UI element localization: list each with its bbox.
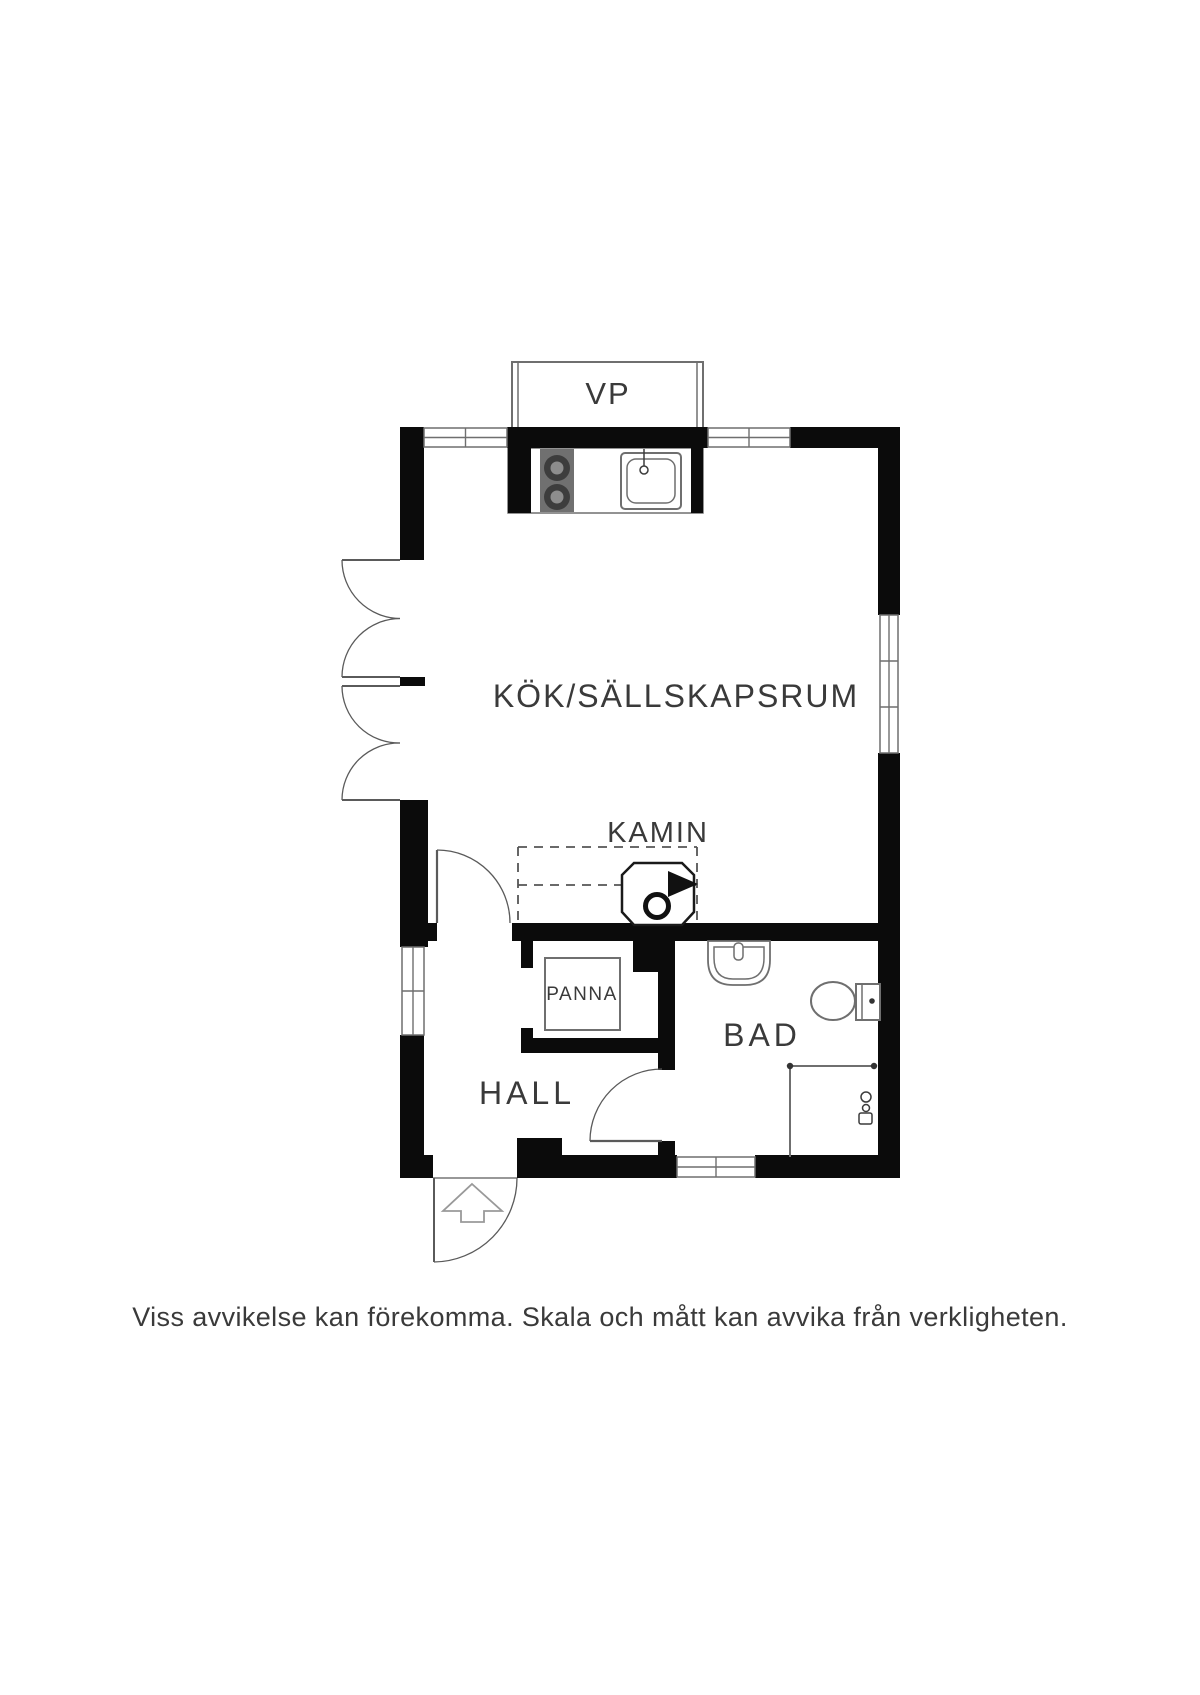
window-top-right-icon [708, 428, 790, 447]
room-label-bathroom: BAD [723, 1017, 801, 1053]
wall-top-center [507, 427, 708, 448]
wall-bottom-right [755, 1155, 900, 1178]
window-left-icon [402, 947, 424, 1035]
fireplace-icon [622, 863, 698, 925]
wall-bottom-middle [562, 1155, 677, 1178]
labels: VP KÖK/SÄLLSKAPSRUM KAMIN PANNA HALL BAD… [132, 376, 1068, 1332]
stove-icon [540, 449, 574, 512]
wall-left-door-stub [400, 677, 425, 686]
room-label-vp: VP [585, 376, 630, 411]
entrance-arrow-icon [443, 1184, 502, 1222]
french-door-lower-icon [342, 686, 400, 800]
room-label-boiler: PANNA [546, 984, 618, 1005]
floor-plan: VP KÖK/SÄLLSKAPSRUM KAMIN PANNA HALL BAD… [0, 0, 1200, 1695]
french-door-upper-icon [342, 560, 400, 677]
window-right-icon [880, 615, 898, 753]
shower-icon [787, 1063, 877, 1157]
room-label-fireplace: KAMIN [607, 817, 709, 849]
bathroom-door-icon [590, 1069, 662, 1141]
floor-plan-page: VP KÖK/SÄLLSKAPSRUM KAMIN PANNA HALL BAD… [0, 0, 1200, 1695]
room-label-kitchen-living: KÖK/SÄLLSKAPSRUM [493, 678, 859, 714]
wall-interior-main [512, 923, 878, 941]
wall-interior-west [400, 923, 437, 941]
bathroom-door-stub [658, 1141, 675, 1157]
boiler-room-south-wall [521, 1038, 675, 1053]
toilet-icon [811, 982, 880, 1020]
hall-kitchen-door-icon [437, 850, 510, 923]
window-top-left-icon [424, 428, 507, 447]
boiler-room-stub-nw [521, 941, 533, 968]
windows [402, 428, 898, 1177]
bathroom-sink-icon [708, 941, 770, 985]
wall-bottom-block [517, 1138, 562, 1178]
wall-bottom-left [400, 1155, 433, 1178]
kitchen-sink-icon [621, 449, 681, 509]
shower-mixer-icon [859, 1092, 872, 1124]
room-label-hall: HALL [479, 1075, 575, 1111]
counter-end-right [691, 448, 703, 513]
boiler-room-stub-sw [521, 1028, 533, 1038]
wall-right-upper [878, 427, 900, 615]
counter-end-left [508, 448, 531, 513]
wall-right-lower [878, 753, 900, 1178]
disclaimer-text: Viss avvikelse kan förekomma. Skala och … [132, 1302, 1068, 1332]
window-bottom-icon [677, 1157, 755, 1177]
wall-left-upper [400, 427, 424, 560]
